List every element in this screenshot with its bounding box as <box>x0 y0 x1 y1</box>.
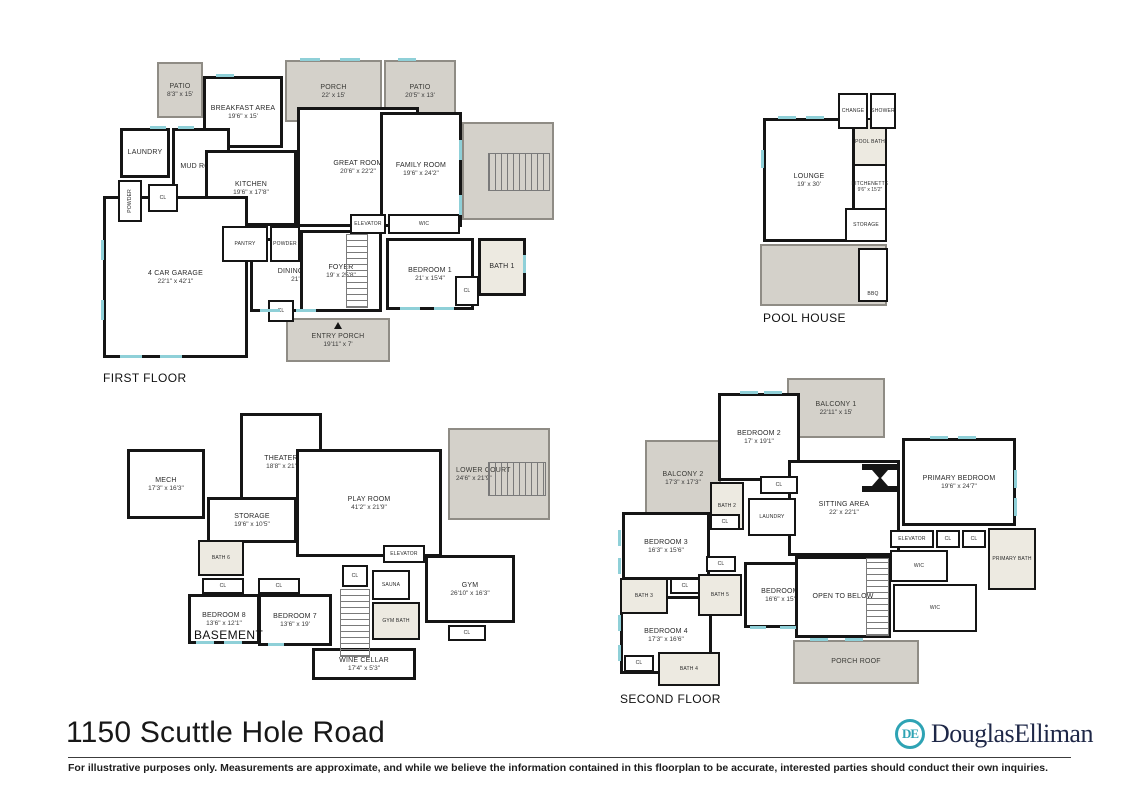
window-marker <box>216 74 234 77</box>
brand-wordmark: DouglasElliman <box>931 719 1093 749</box>
room-family-room: FAMILY ROOM 19'6" x 24'2" <box>380 112 462 227</box>
room-label: PATIO <box>170 82 191 91</box>
window-marker <box>810 638 828 641</box>
room-closet-stairs: CL <box>342 565 368 587</box>
room-label: ELEVATOR <box>390 551 417 558</box>
room-label: LOUNGE <box>794 172 825 181</box>
room-label: FAMILY ROOM <box>396 161 446 170</box>
room-label: CL <box>160 195 167 202</box>
room-label: PANTRY <box>234 241 255 248</box>
window-marker <box>780 626 796 629</box>
window-marker <box>523 255 526 273</box>
room-label: WIC <box>419 221 429 228</box>
window-marker <box>268 643 284 646</box>
room-label: BATH 3 <box>635 593 653 600</box>
room-closet-bed2: CL <box>760 476 798 494</box>
entry-arrow-icon <box>334 322 342 329</box>
room-label: GREAT ROOM <box>333 159 382 168</box>
room-dims: 19'6" x 10'5" <box>234 521 270 529</box>
room-label: THEATER <box>264 454 298 463</box>
room-label: STORAGE <box>853 222 879 229</box>
room-label: CL <box>276 583 283 590</box>
room-porch-roof: PORCH ROOF <box>793 640 919 684</box>
room-label: CL <box>722 519 729 526</box>
room-elevator-second: ELEVATOR <box>890 530 934 548</box>
room-dims: 17'3" x 16'6" <box>648 636 684 644</box>
room-label: CL <box>352 573 359 580</box>
room-bath-6: BATH 6 <box>198 540 244 576</box>
room-dims: 18'8" x 21' <box>266 463 296 471</box>
room-label: SAUNA <box>382 582 400 589</box>
room-label: BATH 1 <box>489 262 514 271</box>
stairs <box>488 462 546 496</box>
room-closet-hall: CL <box>710 514 740 530</box>
room-label: BATH 4 <box>680 666 698 673</box>
room-closet-bed4: CL <box>624 655 654 672</box>
room-label: OPEN TO BELOW <box>812 592 873 601</box>
room-dims: 20'6" x 22'2" <box>340 168 376 176</box>
brand-logo: DE DouglasElliman <box>895 719 1093 749</box>
room-dims: 8'3" x 15' <box>167 91 193 99</box>
room-dims: 19'6" x 24'2" <box>403 170 439 178</box>
room-wic-bottom: WIC <box>893 584 977 632</box>
window-marker <box>845 638 863 641</box>
stairs <box>866 558 889 636</box>
room-gym-bath: GYM BATH <box>372 602 420 640</box>
fireplace-icon <box>860 464 900 492</box>
room-dims: 9'6" x 15'2" <box>858 187 883 193</box>
room-label: PRIMARY BATH <box>992 556 1031 563</box>
room-label: LAUNDRY <box>128 148 163 157</box>
room-dims: 19'6" x 24'7" <box>941 483 977 491</box>
room-balcony-1: BALCONY 1 22'11" x 15' <box>787 378 885 438</box>
room-pantry: PANTRY <box>222 226 268 262</box>
room-label: CHANGE <box>842 108 865 115</box>
stairs <box>488 153 550 191</box>
window-marker <box>958 436 976 439</box>
room-label: BEDROOM 4 <box>644 627 688 636</box>
window-marker <box>178 126 194 129</box>
window-marker <box>340 58 360 61</box>
room-closet-gym: CL <box>448 625 486 641</box>
stairs <box>346 234 368 308</box>
room-label: BATH 6 <box>212 555 230 562</box>
room-label: PATIO <box>410 83 431 92</box>
window-marker <box>930 436 948 439</box>
room-bbq: BBQ <box>858 248 888 302</box>
room-label: CL <box>464 288 471 295</box>
window-marker <box>459 140 462 160</box>
window-marker <box>618 558 621 574</box>
window-marker <box>398 58 416 61</box>
room-dims: 19'6" x 15' <box>228 113 258 121</box>
window-marker <box>806 116 824 119</box>
room-closet-bed7: CL <box>258 578 300 594</box>
brand-monogram-icon: DE <box>895 719 925 749</box>
room-label: BEDROOM 3 <box>644 538 688 547</box>
room-closet-primary: CL <box>962 530 986 548</box>
room-bath-3: BATH 3 <box>620 578 668 614</box>
window-marker <box>300 58 320 61</box>
room-label: MECH <box>155 476 176 485</box>
room-label: PORCH <box>320 83 346 92</box>
floorplan-page: PATIO 8'3" x 15' PORCH 22' x 15' PATIO 2… <box>0 0 1137 804</box>
room-label: BEDROOM 2 <box>737 429 781 438</box>
room-closet-bed8: CL <box>202 578 244 594</box>
window-marker <box>750 626 766 629</box>
basement-label: BASEMENT <box>194 628 263 642</box>
room-label: BEDROOM 1 <box>408 266 452 275</box>
room-powder-1: POWDER <box>118 180 142 222</box>
footer-divider <box>68 757 1071 758</box>
room-shower: SHOWER <box>870 93 896 129</box>
room-label: POOL BATH <box>855 139 885 146</box>
room-label: PORCH ROOF <box>831 657 880 666</box>
pool-house-label: POOL HOUSE <box>763 311 846 325</box>
window-marker <box>778 116 796 119</box>
footer-disclaimer: For illustrative purposes only. Measurem… <box>68 762 1108 774</box>
room-label: ENTRY PORCH <box>312 332 365 341</box>
room-wic-first: WIC <box>388 214 460 234</box>
room-label: BEDROOM 7 <box>273 612 317 621</box>
room-dims: 22'11" x 15' <box>820 409 853 417</box>
room-label: BALCONY 2 <box>663 470 704 479</box>
window-marker <box>296 309 316 312</box>
stairs <box>340 589 370 657</box>
room-closet-bed1: CL <box>455 276 479 306</box>
room-sauna: SAUNA <box>372 570 410 600</box>
room-bath-1: BATH 1 <box>478 238 526 296</box>
room-label: ELEVATOR <box>354 221 381 228</box>
room-storage-basement: STORAGE 19'6" x 10'5" <box>207 497 297 543</box>
room-label: GYM BATH <box>382 618 409 625</box>
room-label: CL <box>945 536 952 543</box>
room-label: ELEVATOR <box>898 536 925 543</box>
room-label: STORAGE <box>234 512 270 521</box>
room-primary-bath: PRIMARY BATH <box>988 528 1036 590</box>
room-dims: 17'3" x 16'3" <box>148 485 184 493</box>
room-label: BEDROOM 8 <box>202 611 246 620</box>
room-bedroom-7: BEDROOM 7 13'6" x 19' <box>258 594 332 646</box>
room-closet-hall2: CL <box>936 530 960 548</box>
window-marker <box>120 355 142 358</box>
room-primary-bedroom: PRIMARY BEDROOM 19'6" x 24'7" <box>902 438 1016 526</box>
room-wic-top: WIC <box>890 550 948 582</box>
room-label: WIC <box>930 605 940 612</box>
room-dims: 20'5" x 13' <box>405 92 435 100</box>
room-dims: 41'2" x 21'9" <box>351 504 387 512</box>
room-dims: 19'11" x 7' <box>323 341 352 349</box>
room-dims: 17'3" x 17'3" <box>665 479 701 487</box>
room-label: BATH 5 <box>711 592 729 599</box>
room-dims: 17'4" x 5'3" <box>348 665 380 673</box>
room-label: WIC <box>914 563 924 570</box>
room-kitchenette: KITCHENETTE 9'6" x 15'2" <box>853 164 887 210</box>
room-label: POWDER <box>127 189 134 213</box>
room-bath-5: BATH 5 <box>698 574 742 616</box>
room-closet-mud: CL <box>148 184 178 212</box>
room-dims: 13'6" x 19' <box>280 621 310 629</box>
room-label: KITCHEN <box>235 180 267 189</box>
window-marker <box>618 615 621 631</box>
room-dims: 21' x 15'4" <box>415 275 445 283</box>
page-title: 1150 Scuttle Hole Road <box>66 716 385 750</box>
window-marker <box>101 240 104 260</box>
room-label: PRIMARY BEDROOM <box>923 474 996 483</box>
first-floor-label: FIRST FLOOR <box>103 371 187 385</box>
room-dims: 13'6" x 12'1" <box>206 620 242 628</box>
window-marker <box>459 195 462 215</box>
room-label: CL <box>776 482 783 489</box>
window-marker <box>764 391 782 394</box>
room-label: BALCONY 1 <box>816 400 857 409</box>
room-label: CL <box>971 536 978 543</box>
room-label: SITTING AREA <box>819 500 870 509</box>
window-marker <box>761 150 764 168</box>
room-closet-bed5: CL <box>706 556 736 572</box>
room-elevator-first: ELEVATOR <box>350 214 386 234</box>
room-dims: 26'10" x 16'3" <box>450 590 489 598</box>
window-marker <box>618 645 621 661</box>
room-label: CL <box>718 561 725 568</box>
room-label: LAUNDRY <box>759 514 784 521</box>
room-foyer: FOYER 19' x 25'8" <box>300 230 382 312</box>
window-marker <box>260 309 280 312</box>
room-label: SHOWER <box>871 108 895 115</box>
room-dims: 17' x 19'1" <box>744 438 774 446</box>
room-patio-left: PATIO 8'3" x 15' <box>157 62 203 118</box>
window-marker <box>1014 498 1017 516</box>
room-mech: MECH 17'3" x 16'3" <box>127 449 205 519</box>
room-elevator-basement: ELEVATOR <box>383 545 425 563</box>
room-label: CL <box>220 583 227 590</box>
room-gym: GYM 26'10" x 16'3" <box>425 555 515 623</box>
window-marker <box>1014 470 1017 488</box>
window-marker <box>150 126 166 129</box>
room-laundry: LAUNDRY <box>120 128 170 178</box>
window-marker <box>101 300 104 320</box>
room-storage-pool: STORAGE <box>845 208 887 242</box>
room-label: BREAKFAST AREA <box>211 104 276 113</box>
room-dims: 16'3" x 15'6" <box>648 547 684 555</box>
room-label: CL <box>682 583 689 590</box>
room-label: 4 CAR GARAGE <box>148 269 203 278</box>
room-dims: 22' x 15' <box>322 92 346 100</box>
window-marker <box>434 307 454 310</box>
room-label: CL <box>636 660 643 667</box>
room-label: BBQ <box>867 291 878 298</box>
room-label: CL <box>464 630 471 637</box>
room-dims: 22' x 22'1" <box>829 509 859 517</box>
room-label: PLAY ROOM <box>348 495 391 504</box>
room-label: BATH 2 <box>718 503 736 510</box>
room-change: CHANGE <box>838 93 868 129</box>
window-marker <box>160 355 182 358</box>
room-dims: 19' x 30' <box>797 181 821 189</box>
room-laundry-second: LAUNDRY <box>748 498 796 536</box>
room-closet-bed3: CL <box>670 578 700 594</box>
room-bedroom-3: BEDROOM 3 16'3" x 15'6" <box>622 512 710 580</box>
room-label: GYM <box>462 581 479 590</box>
window-marker <box>740 391 758 394</box>
room-powder-2: POWDER <box>270 226 300 262</box>
window-marker <box>618 530 621 546</box>
room-label: POWDER <box>273 241 297 248</box>
room-dims: 24'6" x 21'9" <box>456 475 492 483</box>
second-floor-label: SECOND FLOOR <box>620 692 721 706</box>
window-marker <box>400 307 420 310</box>
room-play-room: PLAY ROOM 41'2" x 21'9" <box>296 449 442 557</box>
room-lounge: LOUNGE 19' x 30' <box>763 118 855 242</box>
room-dims: 22'1" x 42'1" <box>158 278 194 286</box>
room-bath-4: BATH 4 <box>658 652 720 686</box>
